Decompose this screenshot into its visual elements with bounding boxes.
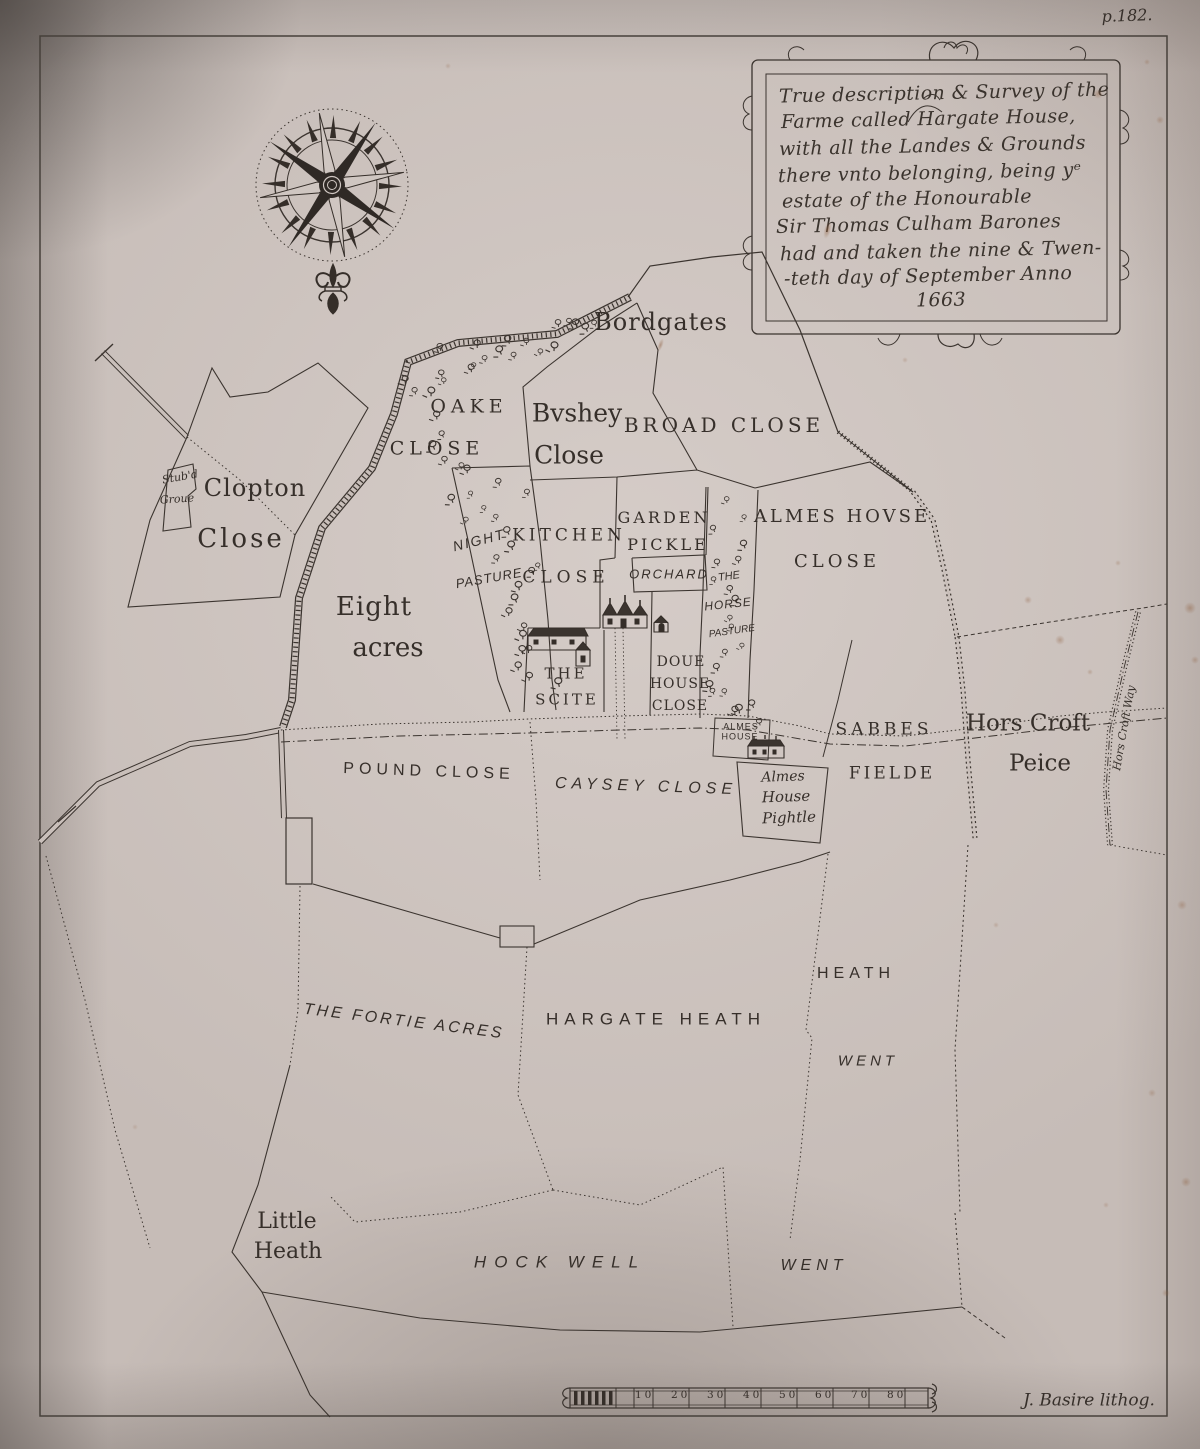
field-label-acres: acres — [352, 635, 423, 661]
cartouche-line: 1663 — [916, 288, 966, 311]
scale-bar-numbers: 1020304050607080 — [560, 1380, 950, 1416]
fleur-de-lis-icon — [316, 264, 349, 314]
scale-tick-label: 20 — [671, 1389, 690, 1401]
scite-farm-buildings — [528, 628, 590, 666]
field-label-kitchen: KITCHEN — [512, 528, 626, 545]
field-label-pightle-almes: Almes — [761, 769, 805, 785]
field-label-fielde: FIELDE — [849, 766, 935, 783]
field-label-little: Little — [257, 1211, 316, 1233]
field-label-almes-house-sm2: HOUSE — [721, 733, 758, 742]
field-label-byshey-close: Close — [534, 443, 604, 468]
field-label-went-s: WENT — [780, 1258, 847, 1274]
field-label-groue: Groue — [160, 492, 195, 505]
map-page: p.182. True description & Survey of the … — [0, 0, 1200, 1449]
scale-tick-label: 10 — [635, 1389, 654, 1401]
field-label-hargate-heath: HARGATE HEATH — [546, 1011, 766, 1028]
field-label-garden: GARDEN — [618, 510, 711, 526]
field-label-byshey: Bvshey — [532, 401, 622, 426]
field-label-broad-close: BROAD CLOSE — [624, 415, 824, 435]
field-label-bordgates: Bordgates — [594, 310, 728, 334]
field-label-pickle: PICKLE — [627, 537, 709, 553]
field-label-almes-hovse: ALMES HOVSE — [754, 508, 930, 526]
field-label-scite-the: THE — [544, 667, 587, 682]
scale-tick-label: 40 — [743, 1389, 762, 1401]
field-label-oake: OAKE — [430, 398, 507, 417]
field-label-oake-close: CLOSE — [390, 440, 485, 459]
field-label-clopton-close: Close — [197, 526, 285, 552]
field-label-almes-hovse-close: CLOSE — [794, 553, 880, 571]
field-label-little-heath: Heath — [254, 1241, 322, 1263]
field-label-hors-croft: Hors Croft — [966, 713, 1090, 736]
field-label-eight: Eight — [336, 594, 412, 620]
field-label-almes-house-sm: ALMES — [723, 723, 759, 732]
scale-tick-label: 60 — [815, 1389, 834, 1401]
field-label-doue: DOUE — [657, 655, 706, 669]
scale-tick-label: 80 — [887, 1389, 906, 1401]
dove-house-building — [654, 616, 668, 632]
lithographer-signature: J. Basire lithog. — [1023, 1393, 1155, 1410]
field-label-hock-well: HOCK WELL — [474, 1254, 646, 1271]
compass-rose — [244, 97, 420, 273]
field-label-sabbes: SABBES — [836, 722, 933, 739]
field-label-scite: SCITE — [535, 693, 599, 708]
field-label-orchard: ORCHARD — [629, 568, 709, 581]
field-label-pightle: Pightle — [762, 810, 816, 827]
field-label-went-ne: WENT — [838, 1054, 898, 1069]
scale-tick-label: 70 — [851, 1389, 870, 1401]
page-number: p.182. — [1101, 7, 1152, 25]
hargate-house-building — [603, 595, 647, 628]
field-label-pightle-house: House — [762, 789, 811, 806]
field-label-peice: Peice — [1009, 753, 1071, 776]
field-label-heath: HEATH — [817, 966, 895, 982]
scale-tick-label: 50 — [779, 1389, 798, 1401]
field-label-kitchen-close: CLOSE — [522, 570, 609, 587]
field-label-doue-close: CLOSE — [652, 699, 708, 713]
scale-tick-label: 30 — [707, 1389, 726, 1401]
field-label-clopton: Clopton — [204, 476, 306, 500]
field-label-doue-house: HOUSE — [650, 677, 710, 691]
